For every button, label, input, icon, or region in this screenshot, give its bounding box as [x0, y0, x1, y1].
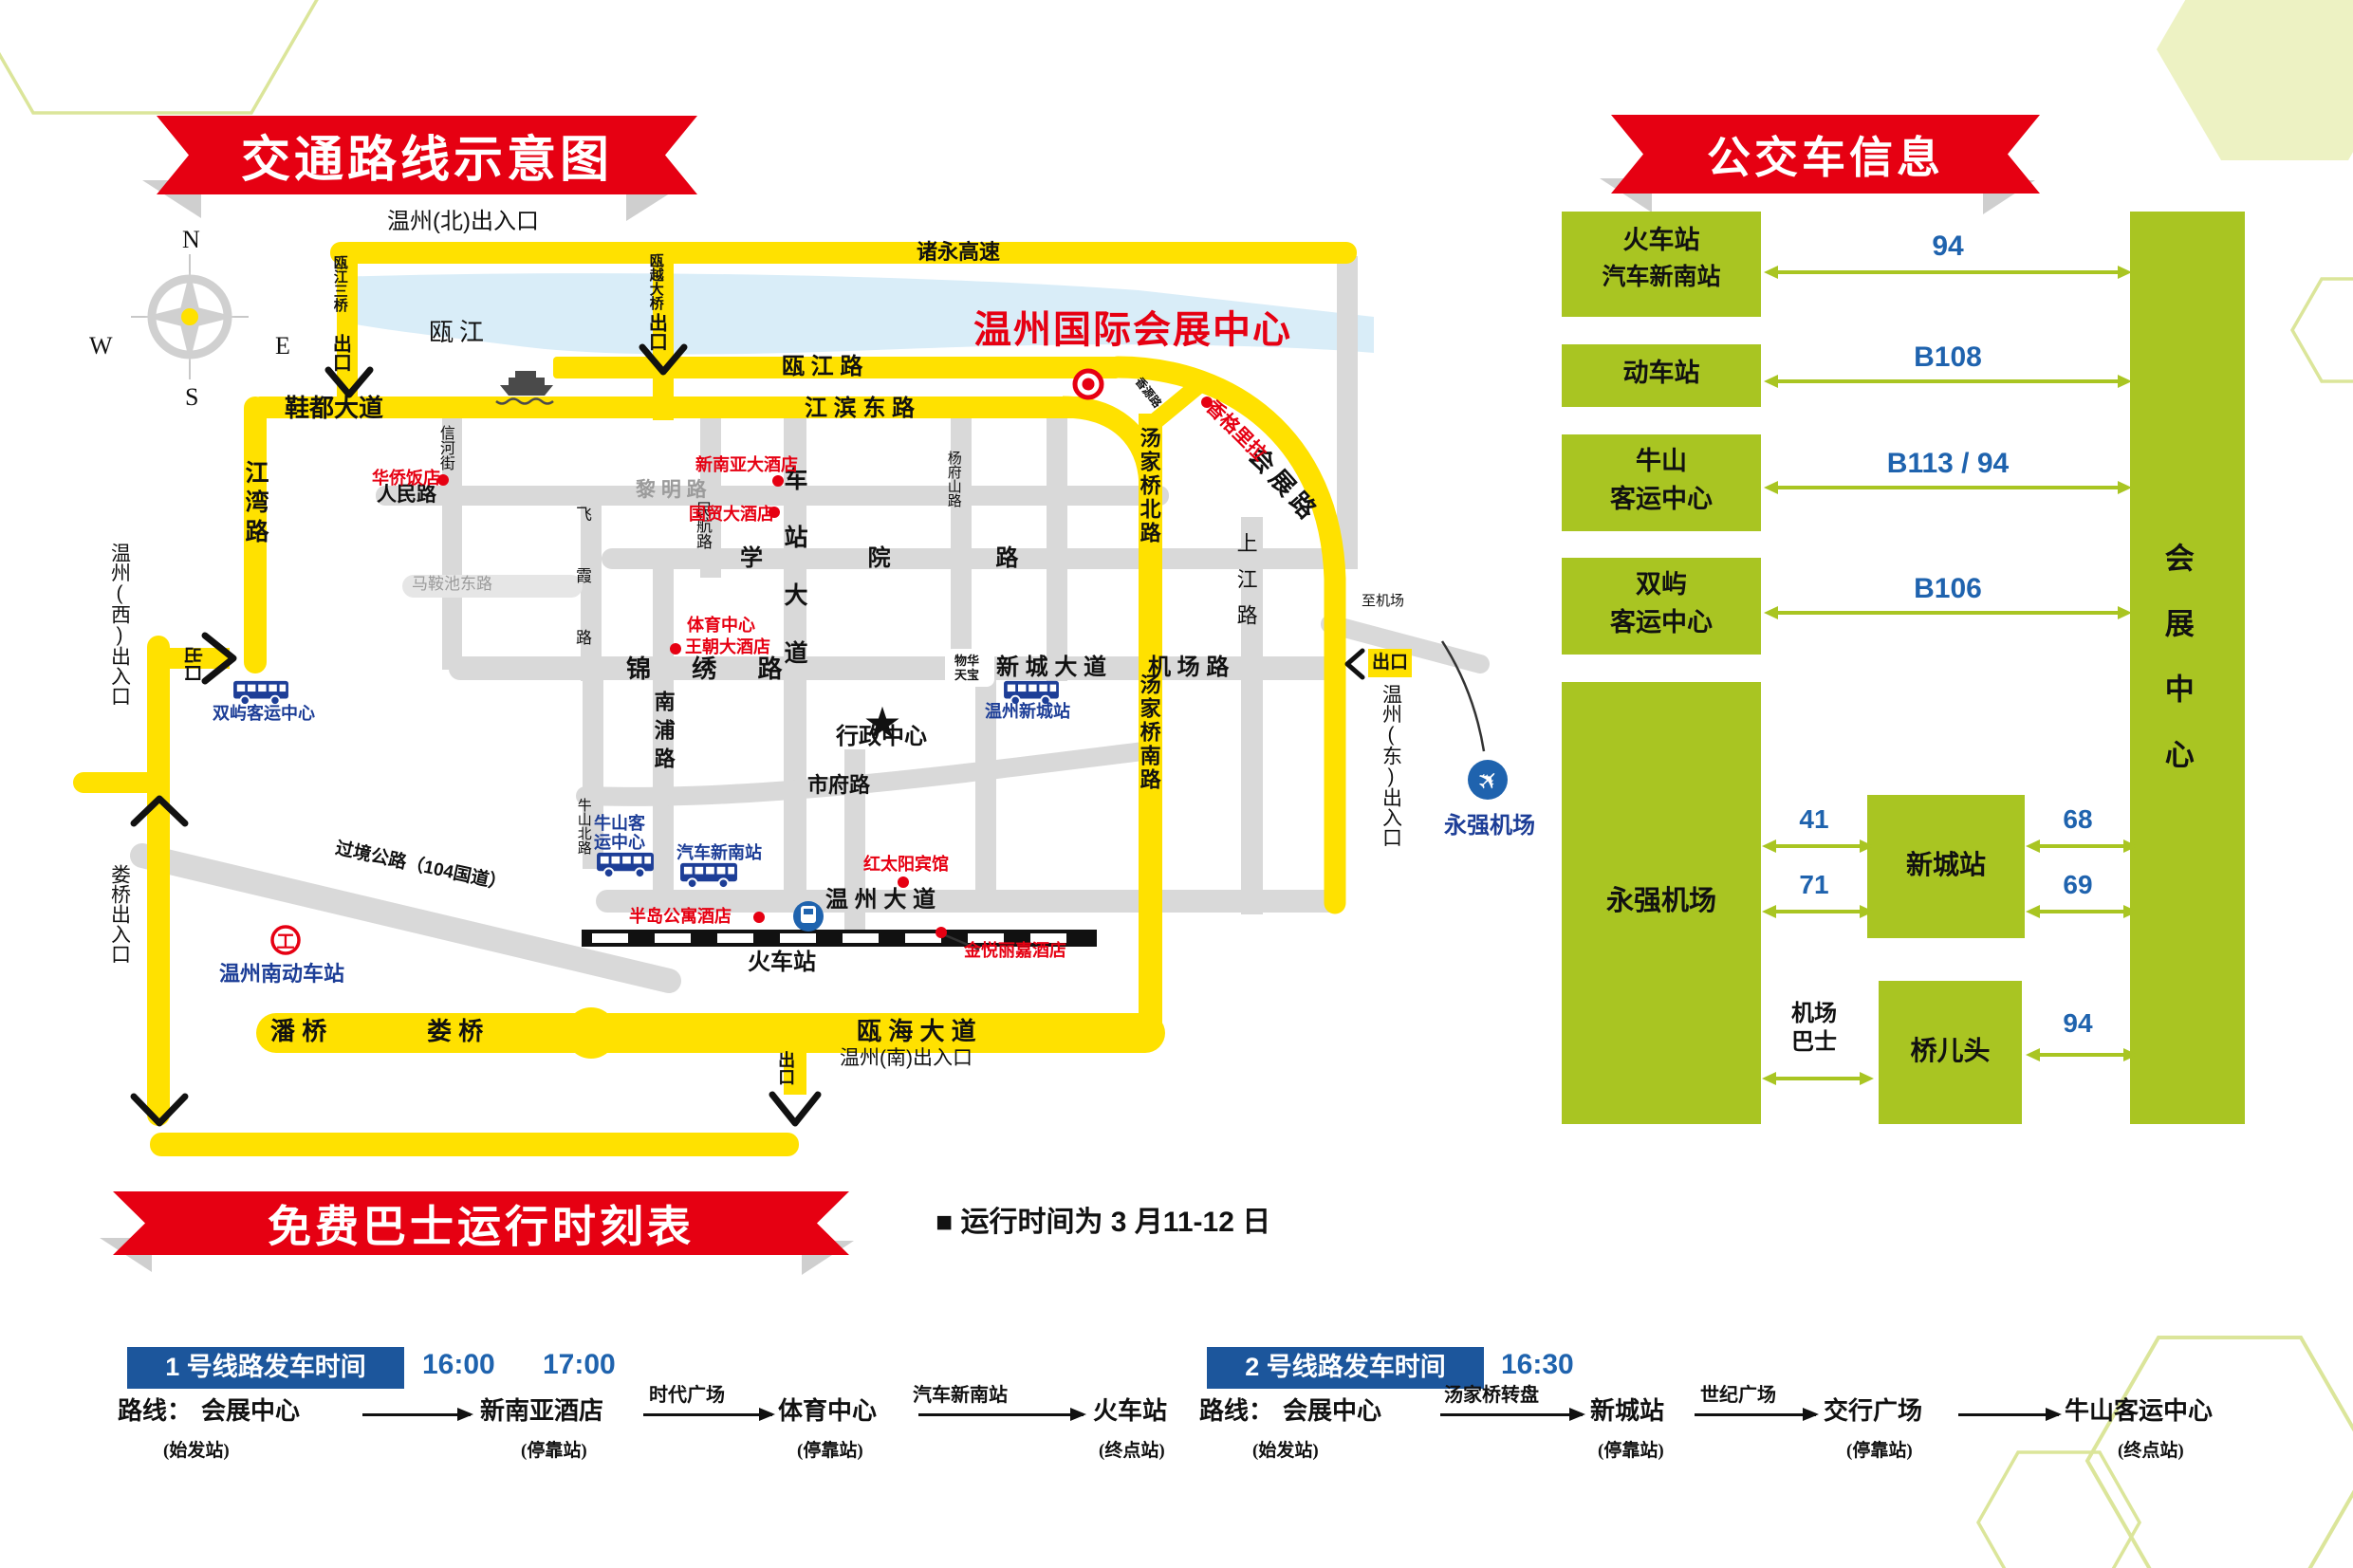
panel-route-b108: B108 [1772, 341, 2123, 374]
label-poi-yongqiang: 永强机场 [1444, 814, 1535, 839]
label-exit-west: 出口 [182, 646, 202, 682]
label-poi-bandao: 半岛公寓酒店 [629, 907, 732, 926]
panel-stop-airport: 永强机场 [1562, 886, 1761, 916]
label-poi-niushan1: 牛山客 [594, 814, 645, 833]
panel-route-b106: B106 [1772, 573, 2123, 605]
shuttle2-arrow3 [1958, 1413, 2059, 1416]
panel-jichang-bus-l2: 巴士 [1769, 1030, 1860, 1056]
label-to-airport: 至机场 [1362, 594, 1404, 610]
label-poi-huaqiao: 华侨饭店 [372, 469, 440, 488]
label-poi-wzxincheng: 温州新城站 [985, 702, 1070, 721]
compass-w: W [89, 332, 113, 360]
label-entrance-west: 温州(西)出入口 [108, 543, 131, 706]
shuttle2-prefix: 路线： [1199, 1397, 1273, 1425]
label-road-wuhua1: 物华 [954, 655, 979, 669]
shuttle2-arrow1 [1440, 1413, 1583, 1416]
shuttle-title: 免费巴士运行时刻表 [268, 1192, 695, 1255]
panel-arrow-68 [2038, 844, 2125, 848]
label-road-oujiang3: 瓯江三桥 [331, 255, 347, 312]
compass-n: N [182, 226, 200, 253]
label-poi-jinyue: 金悦丽嘉酒店 [964, 941, 1066, 960]
panel-jichang-bus-l1: 机场 [1769, 1002, 1860, 1027]
label-road-wuhua2: 天宝 [954, 669, 979, 683]
panel-stop-dongche: 动车站 [1562, 359, 1761, 387]
label-road-jiangwan: 江湾路 [242, 460, 269, 548]
label-road-jiangbin: 江 滨 东 路 [805, 397, 915, 422]
shuttle1-stop3: 体育中心 [778, 1397, 877, 1425]
map-title: 交通路线示意图 [241, 120, 613, 191]
label-poi-center: 温州国际会展中心 [973, 309, 1292, 352]
label-entrance-louqiao: 娄桥出入口 [108, 864, 131, 964]
shuttle1-stop2: 新南亚酒店 [480, 1397, 603, 1425]
label-road-shangjiang: 上江路 [1233, 532, 1257, 640]
shuttle1-tag2: (停靠站) [521, 1441, 587, 1461]
label-road-shifu: 市府路 [807, 774, 870, 798]
label-poi-wznan: 温州南动车站 [219, 963, 344, 987]
label-road-liming: 黎 明 路 [636, 479, 707, 502]
label-poi-shuangyu: 双屿客运中心 [213, 704, 315, 723]
label-poi-huochezhan: 火车站 [748, 950, 816, 976]
label-road-tangjia-s: 汤家桥南路 [1137, 673, 1160, 792]
label-road-feixia: 飞霞路 [573, 506, 591, 691]
label-exit-south: 出口 [776, 1051, 795, 1085]
shuttle1-time1: 16:00 [422, 1349, 495, 1381]
label-poi-hongtaiyang: 红太阳宾馆 [863, 855, 949, 874]
shuttle1-via3: 汽车新南站 [913, 1385, 1008, 1406]
shuttle2-time1: 16:30 [1501, 1349, 1574, 1381]
label-river: 瓯江 [429, 319, 490, 346]
label-poi-niushan2: 运中心 [594, 833, 645, 852]
panel-stop-shuangyu-l2: 客运中心 [1562, 608, 1761, 636]
panel-route-68: 68 [2032, 804, 2123, 834]
panel-route-41: 41 [1769, 804, 1860, 834]
panel-stop-niushan-l1: 牛山 [1562, 447, 1761, 475]
label-poi-qiche: 汽车新南站 [676, 843, 762, 862]
panel-stop-center: 会展中心 [2159, 543, 2193, 804]
panel-arrow-41 [1774, 844, 1862, 848]
panel-arrow-69 [2038, 910, 2125, 913]
panel-arrow-jichang-bus [1774, 1077, 1862, 1080]
shuttle2-arrow2 [1695, 1413, 1816, 1416]
shuttle1-arrow3 [918, 1413, 1084, 1416]
shuttle2-via2: 世纪广场 [1700, 1385, 1776, 1406]
panel-route-94: 94 [1772, 231, 2123, 263]
map-title-banner: 交通路线示意图 [157, 116, 697, 194]
shuttle1-stop4: 火车站 [1093, 1397, 1167, 1425]
label-road-niushan-n: 牛山北路 [575, 798, 591, 855]
label-entrance-south: 温州(南)出入口 [840, 1047, 973, 1070]
panel-arrow-b108 [1776, 379, 2120, 383]
labels-layer: NWES温州(北)出入口温州(西)出入口娄桥出入口温州(南)出入口温州(东)出入… [0, 0, 2353, 1568]
shuttle2-stop3: 交行广场 [1824, 1397, 1922, 1425]
compass-s: S [185, 383, 198, 411]
shuttle1-time2: 17:00 [543, 1349, 616, 1381]
panel-stop-shuangyu-l1: 双屿 [1562, 570, 1761, 599]
label-poi-xianggelila: 香格里拉 [1201, 397, 1269, 465]
label-road-xueyuan: 学 院 路 [740, 546, 1067, 572]
label-road-jichang: 机 场 路 [1148, 655, 1229, 681]
shuttle2-tag3: (停靠站) [1846, 1441, 1913, 1461]
shuttle2-header: 2 号线路发车时间 [1207, 1353, 1484, 1381]
label-exit-east: 出口 [1372, 653, 1408, 673]
panel-route-69: 69 [2032, 870, 2123, 899]
shuttle1-tag3: (停靠站) [797, 1441, 863, 1461]
panel-stop-xincheng: 新城站 [1867, 850, 2025, 879]
label-road-xiedu: 鞋都大道 [285, 395, 383, 422]
panel-arrow-94 [1776, 270, 2120, 274]
label-entrance-north: 温州(北)出入口 [387, 210, 539, 235]
shuttle1-tag4: (终点站) [1099, 1441, 1165, 1461]
shuttle1-via2: 时代广场 [649, 1385, 725, 1406]
panel-route-71: 71 [1769, 870, 1860, 899]
label-road-zhuyong: 诸永高速 [917, 241, 1000, 265]
panel-stop-niushan-l2: 客运中心 [1562, 485, 1761, 513]
label-road-jinxiu: 锦 绣 路 [626, 655, 799, 683]
shuttle1-tag1: (始发站) [163, 1441, 230, 1461]
shuttle1-prefix: 路线： [118, 1397, 192, 1425]
transit-poster: ★ 工 ✈ [0, 0, 2353, 1568]
compass-e: E [275, 332, 290, 360]
label-road-huiyuan: 香源路 [1132, 376, 1163, 411]
shuttle1-arrow2 [643, 1413, 772, 1416]
shuttle2-tag4: (终点站) [2118, 1441, 2184, 1461]
label-road-louqiao: 娄 桥 [427, 1018, 483, 1045]
label-poi-xinnanya: 新南亚大酒店 [695, 455, 798, 474]
panel-stop-railway-l1: 火车站 [1562, 226, 1761, 254]
panel-stop-qiaoertou: 桥儿头 [1879, 1036, 2022, 1065]
panel-route-b113: B113 / 94 [1772, 448, 2123, 480]
label-poi-tiyu: 体育中心 [687, 616, 755, 635]
label-road-madong: 马鞍池东路 [412, 575, 492, 593]
panel-arrow-b106 [1776, 611, 2120, 615]
label-road-wz-dadao: 温 州 大 道 [825, 888, 936, 913]
shuttle2-via1: 汤家桥转盘 [1444, 1385, 1539, 1406]
shuttle2-stop1: 会展中心 [1283, 1397, 1381, 1425]
label-road-panqiao: 潘 桥 [270, 1018, 326, 1045]
label-road-nanpu: 南浦路 [651, 691, 675, 776]
panel-route-94b: 94 [2032, 1008, 2123, 1038]
label-road-ouyue: 瓯越大桥 [647, 253, 663, 310]
label-entrance-east: 温州(东)出入口 [1380, 684, 1402, 847]
shuttle1-header: 1 号线路发车时间 [127, 1353, 404, 1381]
label-road-guojing: 过境公路（104国道） [334, 839, 509, 895]
label-poi-xingzheng: 行政中心 [836, 725, 927, 750]
label-road-yangfushan: 杨府山路 [945, 451, 961, 507]
label-poi-wangchao: 王朝大酒店 [685, 637, 770, 656]
label-exit-oujiang3: 出口 [329, 334, 350, 372]
shuttle-note: ■ 运行时间为 3 月11-12 日 [936, 1207, 1270, 1239]
label-road-tangjia-n: 汤家桥北路 [1137, 427, 1160, 545]
panel-stop-railway-l2: 汽车新南站 [1562, 264, 1761, 290]
panel-arrow-b113 [1776, 486, 2120, 489]
shuttle2-stop4: 牛山客运中心 [2065, 1397, 2213, 1425]
label-exit-ouyue: 出口 [645, 313, 666, 351]
bus-info-title: 公交车信息 [1707, 123, 1944, 186]
shuttle2-stop2: 新城站 [1590, 1397, 1664, 1425]
shuttle-banner: 免费巴士运行时刻表 [113, 1191, 849, 1255]
shuttle1-arrow1 [362, 1413, 471, 1416]
panel-arrow-94b [2038, 1053, 2125, 1057]
label-poi-guomao: 国贸大酒店 [689, 505, 774, 524]
panel-arrow-71 [1774, 910, 1862, 913]
shuttle1-stop1: 会展中心 [201, 1397, 300, 1425]
shuttle2-tag1: (始发站) [1252, 1441, 1319, 1461]
shuttle2-tag2: (停靠站) [1598, 1441, 1664, 1461]
label-road-xinhe: 信河街 [436, 425, 454, 470]
bus-info-banner: 公交车信息 [1611, 115, 2040, 194]
label-road-oujiang: 瓯 江 路 [782, 355, 862, 380]
label-road-xincheng: 新 城 大 道 [996, 655, 1106, 681]
label-road-ouhai: 瓯 海 大 道 [857, 1018, 976, 1045]
